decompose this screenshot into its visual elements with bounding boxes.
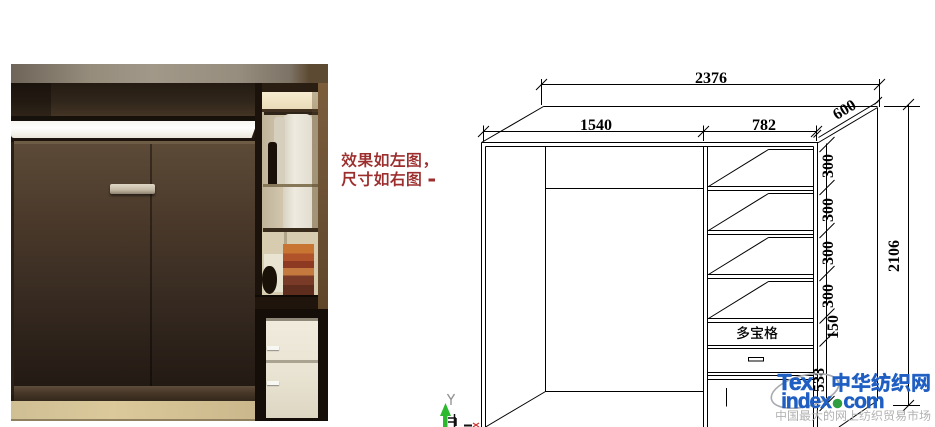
svg-text:538: 538 xyxy=(811,368,828,392)
svg-text:index: index xyxy=(781,390,832,413)
svg-text:com: com xyxy=(843,390,884,413)
svg-text:600: 600 xyxy=(830,97,859,124)
svg-text:300: 300 xyxy=(820,154,837,178)
svg-text:300: 300 xyxy=(820,284,837,308)
svg-text:782: 782 xyxy=(752,117,776,134)
svg-text:300: 300 xyxy=(820,198,837,222)
svg-text:1540: 1540 xyxy=(580,117,612,134)
svg-text:150: 150 xyxy=(825,315,842,339)
svg-text:300: 300 xyxy=(820,241,837,265)
svg-text:2376: 2376 xyxy=(695,70,727,87)
svg-text:2106: 2106 xyxy=(886,240,903,272)
